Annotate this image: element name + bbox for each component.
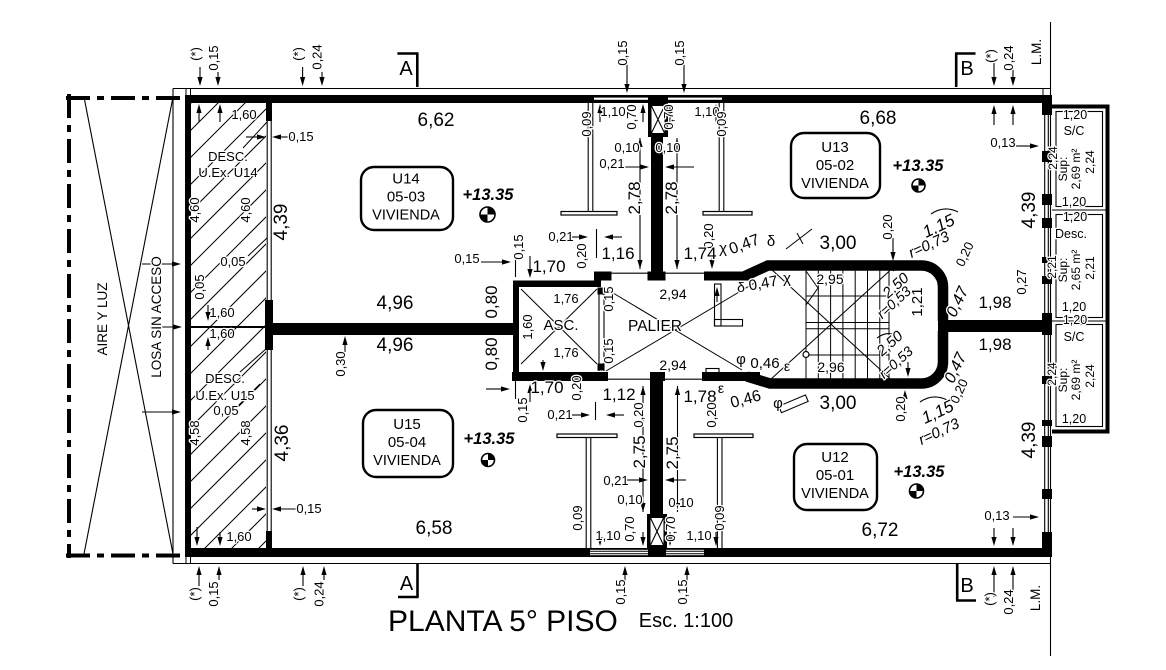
svg-text:U13: U13 (821, 139, 849, 156)
svg-text:Sup:: Sup: (1056, 258, 1070, 283)
svg-text:0,10: 0,10 (668, 495, 693, 510)
svg-text:A: A (400, 573, 414, 595)
svg-text:0,15: 0,15 (613, 579, 628, 604)
svg-text:ASC.: ASC. (543, 317, 578, 334)
svg-text:4,60: 4,60 (187, 197, 202, 222)
svg-text:4,36: 4,36 (272, 425, 293, 462)
svg-text:U.Ex. U14: U.Ex. U14 (198, 165, 257, 180)
svg-text:0,30: 0,30 (333, 351, 348, 376)
svg-text:1,60: 1,60 (231, 107, 256, 122)
svg-text:0,15: 0,15 (515, 397, 530, 422)
svg-text:φ: φ (773, 395, 783, 412)
svg-text:ε: ε (784, 358, 790, 374)
svg-text:0,21: 0,21 (599, 156, 624, 171)
svg-text:4,58: 4,58 (187, 420, 202, 445)
svg-text:1,16: 1,16 (601, 244, 634, 263)
svg-text:0,24: 0,24 (310, 44, 325, 69)
svg-text:0,15: 0,15 (615, 40, 630, 65)
svg-text:DESC.: DESC. (205, 371, 245, 386)
svg-text:1,20: 1,20 (1062, 412, 1086, 426)
svg-text:0,27: 0,27 (1014, 269, 1029, 294)
svg-text:05-02: 05-02 (816, 157, 854, 174)
svg-text:Desc.: Desc. (1055, 227, 1087, 241)
svg-text:2,69 m²: 2,69 m² (1069, 149, 1083, 190)
svg-text:2,75: 2,75 (630, 435, 649, 468)
svg-text:Esc. 1:100: Esc. 1:100 (639, 610, 734, 632)
svg-text:1,98: 1,98 (978, 293, 1011, 312)
svg-text:S/C: S/C (1064, 330, 1085, 344)
svg-text:0,20: 0,20 (880, 214, 895, 239)
svg-text:0,80: 0,80 (482, 337, 501, 370)
svg-text:0,13: 0,13 (990, 135, 1015, 150)
svg-text:4,39: 4,39 (271, 204, 292, 241)
svg-text:0,24: 0,24 (312, 581, 327, 606)
svg-text:VIVIENDA: VIVIENDA (801, 486, 869, 502)
svg-text:0,24: 0,24 (1001, 45, 1016, 70)
svg-text:1,20: 1,20 (1063, 108, 1087, 122)
svg-text:0,46: 0,46 (750, 355, 779, 372)
svg-text:S/C: S/C (1064, 124, 1085, 138)
svg-text:1,21: 1,21 (909, 287, 926, 316)
svg-text:1,74: 1,74 (683, 244, 716, 263)
svg-text:χ: χ (719, 240, 727, 257)
svg-text:05-04: 05-04 (388, 434, 426, 451)
svg-text:1,12: 1,12 (602, 385, 635, 404)
svg-text:(*): (*) (983, 49, 998, 63)
svg-text:2,24: 2,24 (1083, 364, 1097, 388)
svg-text:0,09: 0,09 (570, 505, 585, 530)
svg-text:0,15: 0,15 (206, 581, 221, 606)
svg-text:2,65 m²: 2,65 m² (1069, 250, 1083, 291)
svg-text:2,24: 2,24 (1083, 150, 1097, 174)
svg-text:U12: U12 (821, 449, 849, 466)
svg-text:PLANTA 5° PISO: PLANTA 5° PISO (388, 605, 618, 638)
svg-text:0,05: 0,05 (192, 274, 207, 299)
svg-text:0,15: 0,15 (206, 45, 221, 70)
svg-text:0,70: 0,70 (624, 104, 639, 129)
svg-text:(*): (*) (982, 592, 997, 606)
svg-text:U.Ex. U15: U.Ex. U15 (195, 388, 254, 403)
svg-text:+13.35: +13.35 (894, 463, 946, 481)
svg-text:ε: ε (718, 380, 724, 396)
svg-text:0,20: 0,20 (574, 243, 589, 268)
svg-text:4,60: 4,60 (238, 197, 253, 222)
svg-text:2,78: 2,78 (625, 181, 644, 214)
svg-text:0,15: 0,15 (672, 40, 687, 65)
svg-text:VIVIENDA: VIVIENDA (372, 208, 440, 224)
svg-text:B: B (960, 58, 973, 80)
svg-text:0,20: 0,20 (569, 375, 584, 400)
svg-text:1,10: 1,10 (600, 104, 625, 119)
svg-text:2,95: 2,95 (816, 271, 843, 287)
svg-text:DESC.: DESC. (208, 149, 248, 164)
svg-text:LOSA SIN ACCESO: LOSA SIN ACCESO (149, 256, 164, 378)
svg-text:2,94: 2,94 (659, 286, 686, 302)
svg-text:1,60: 1,60 (520, 314, 535, 339)
svg-text:0,80: 0,80 (482, 285, 501, 318)
svg-text:(*): (*) (188, 47, 203, 61)
svg-text:3,00: 3,00 (820, 233, 857, 254)
svg-text:6,72: 6,72 (862, 520, 899, 541)
svg-text:2,21: 2,21 (1083, 256, 1097, 280)
svg-text:0,70: 0,70 (663, 516, 678, 541)
svg-text:3,00: 3,00 (820, 393, 857, 414)
svg-text:1,20: 1,20 (1063, 210, 1087, 224)
svg-text:05-01: 05-01 (816, 467, 854, 484)
svg-text:0,10: 0,10 (655, 140, 680, 155)
svg-text:L.M.: L.M. (1029, 39, 1044, 65)
svg-text:(*): (*) (291, 47, 306, 61)
svg-text:Sup:: Sup: (1056, 157, 1070, 182)
svg-text:2,78: 2,78 (662, 181, 681, 214)
svg-text:+13.35: +13.35 (893, 157, 945, 175)
svg-text:4,39: 4,39 (1019, 192, 1040, 229)
svg-text:U14: U14 (392, 171, 420, 188)
svg-text:0,20: 0,20 (704, 402, 719, 427)
svg-text:0,15: 0,15 (288, 129, 313, 144)
svg-text:6,58: 6,58 (416, 518, 453, 539)
svg-text:0,70: 0,70 (661, 104, 676, 129)
svg-text:χ: χ (783, 270, 791, 287)
svg-text:0,13: 0,13 (984, 508, 1009, 523)
svg-text:0,05: 0,05 (213, 403, 238, 418)
svg-text:4,39: 4,39 (1019, 422, 1040, 459)
svg-text:φ: φ (736, 351, 746, 368)
svg-text:1,10: 1,10 (686, 528, 711, 543)
svg-text:VIVIENDA: VIVIENDA (801, 176, 869, 192)
svg-text:4,96: 4,96 (377, 335, 414, 356)
svg-text:0,10: 0,10 (617, 492, 642, 507)
svg-text:2,75: 2,75 (663, 436, 682, 469)
svg-text:1,60: 1,60 (226, 529, 251, 544)
svg-text:1,60: 1,60 (209, 305, 234, 320)
svg-text:+13.35: +13.35 (464, 430, 516, 448)
svg-text:A: A (399, 58, 413, 80)
svg-text:1,10: 1,10 (595, 528, 620, 543)
svg-text:2,69 m²: 2,69 m² (1069, 360, 1083, 401)
svg-text:1,76: 1,76 (553, 291, 578, 306)
svg-text:B: B (960, 575, 973, 597)
svg-text:4,96: 4,96 (377, 293, 414, 314)
svg-text:AIRE Y LUZ: AIRE Y LUZ (95, 282, 110, 355)
svg-text:0,09: 0,09 (714, 111, 729, 136)
svg-text:0,15: 0,15 (454, 251, 479, 266)
svg-text:1,20: 1,20 (1062, 195, 1086, 209)
svg-text:0,09: 0,09 (712, 505, 727, 530)
svg-text:2,96: 2,96 (817, 359, 844, 375)
svg-text:0,15: 0,15 (601, 286, 616, 311)
svg-text:0,24: 0,24 (1001, 589, 1016, 614)
svg-text:1,20: 1,20 (1063, 313, 1087, 327)
svg-text:PALIER: PALIER (628, 318, 682, 335)
svg-text:0,15: 0,15 (296, 501, 321, 516)
svg-text:δ: δ (767, 233, 775, 250)
svg-text:1,60: 1,60 (209, 326, 234, 341)
svg-text:4,58: 4,58 (238, 420, 253, 445)
svg-text:0,10: 0,10 (614, 140, 639, 155)
svg-text:0,70: 0,70 (622, 516, 637, 541)
svg-text:05-03: 05-03 (387, 189, 425, 206)
svg-text:+13.35: +13.35 (463, 186, 515, 204)
svg-text:δ: δ (737, 279, 745, 295)
svg-text:6,62: 6,62 (418, 110, 455, 131)
svg-text:0,05: 0,05 (220, 254, 245, 269)
svg-text:1,20: 1,20 (1062, 300, 1086, 314)
svg-text:0,15: 0,15 (601, 338, 616, 363)
svg-text:0,20: 0,20 (631, 402, 646, 427)
svg-text:(*): (*) (187, 587, 202, 601)
svg-text:L.M.: L.M. (1028, 585, 1043, 611)
svg-text:0,15: 0,15 (675, 579, 690, 604)
svg-text:U15: U15 (393, 416, 421, 433)
svg-text:(*): (*) (291, 587, 306, 601)
svg-text:1,76: 1,76 (553, 345, 578, 360)
svg-text:0,21: 0,21 (548, 229, 573, 244)
svg-text:VIVIENDA: VIVIENDA (373, 453, 441, 469)
svg-text:1,70: 1,70 (530, 378, 563, 397)
svg-text:0,21: 0,21 (603, 473, 628, 488)
svg-text:1,98: 1,98 (978, 335, 1011, 354)
svg-text:0,15: 0,15 (511, 234, 526, 259)
svg-text:0,21: 0,21 (547, 407, 572, 422)
svg-text:2,94: 2,94 (659, 357, 686, 373)
svg-text:1,70: 1,70 (532, 257, 565, 276)
svg-text:0,09: 0,09 (579, 111, 594, 136)
svg-text:0,20: 0,20 (893, 396, 908, 421)
svg-text:6,68: 6,68 (860, 108, 897, 129)
svg-text:Sup:: Sup: (1056, 368, 1070, 393)
